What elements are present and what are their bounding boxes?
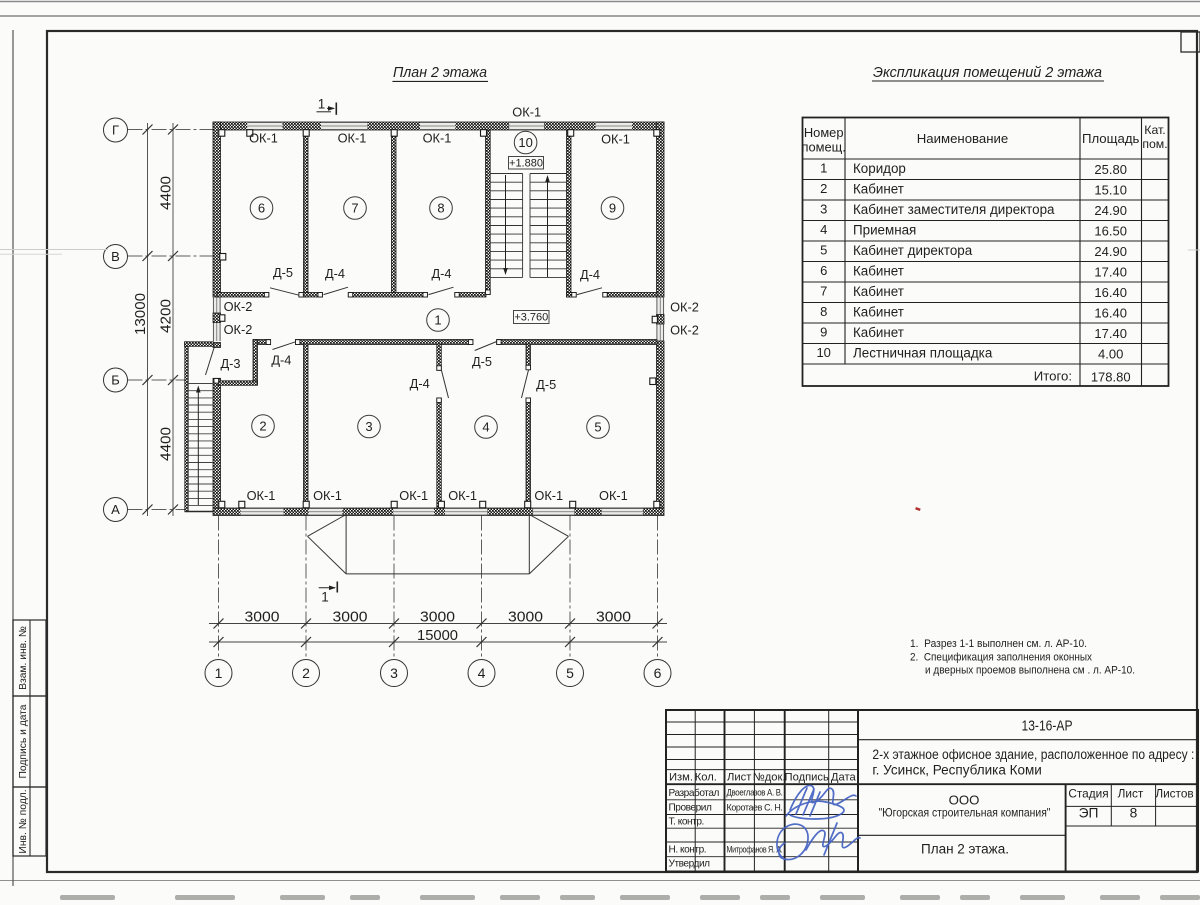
svg-text:ОК-1: ОК-1: [599, 488, 628, 503]
svg-text:16.40: 16.40: [1094, 306, 1127, 321]
svg-text:ОК-2: ОК-2: [224, 299, 253, 314]
svg-text:и дверных проемов выполнена см: и дверных проемов выполнена см . л. АР-1…: [925, 665, 1135, 677]
svg-text:ОК-1: ОК-1: [399, 488, 428, 503]
svg-text:+3.760: +3.760: [514, 312, 548, 324]
svg-text:Кабинет: Кабинет: [853, 182, 904, 197]
svg-text:4400: 4400: [158, 427, 175, 461]
svg-text:В: В: [111, 249, 120, 264]
svg-text:3000: 3000: [333, 609, 368, 626]
svg-text:7: 7: [351, 201, 358, 216]
svg-text:Коридор: Коридор: [853, 161, 906, 176]
svg-text:Утвердил: Утвердил: [669, 859, 711, 870]
svg-text:Номер: Номер: [804, 125, 844, 140]
svg-text:4200: 4200: [158, 299, 175, 333]
svg-text:6: 6: [654, 665, 662, 681]
svg-text:8: 8: [820, 304, 827, 319]
svg-text:1: 1: [321, 590, 329, 605]
svg-text:ОК-1: ОК-1: [601, 132, 630, 147]
svg-text:Стадия: Стадия: [1068, 786, 1108, 800]
svg-text:Б: Б: [111, 373, 120, 388]
svg-text:ОК-1: ОК-1: [423, 131, 452, 146]
svg-text:Подпись: Подпись: [785, 772, 829, 784]
svg-text:Д-5: Д-5: [472, 354, 492, 369]
svg-text:Листов: Листов: [1155, 786, 1193, 800]
svg-text:8: 8: [437, 201, 444, 216]
svg-text:"Югорская строительная компани: "Югорская строительная компания": [879, 806, 1051, 820]
svg-text:6: 6: [258, 201, 265, 216]
svg-text:Д-4: Д-4: [431, 266, 451, 281]
svg-text:13000: 13000: [132, 293, 149, 335]
svg-text:ОК-1: ОК-1: [512, 105, 541, 120]
svg-text:4: 4: [478, 665, 486, 681]
svg-text:Д-3: Д-3: [220, 356, 240, 371]
svg-text:15000: 15000: [417, 627, 458, 644]
svg-text:ОК-2: ОК-2: [670, 323, 699, 338]
svg-text:3000: 3000: [420, 609, 455, 626]
svg-text:10: 10: [518, 135, 532, 150]
svg-text:№док.: №док.: [753, 772, 786, 784]
svg-text:Кабинет: Кабинет: [853, 264, 904, 279]
svg-text:Д-5: Д-5: [536, 377, 556, 392]
svg-text:пом.: пом.: [1142, 137, 1167, 151]
svg-text:4400: 4400: [158, 176, 175, 210]
svg-text:Площадь: Площадь: [1082, 131, 1140, 146]
svg-text:ОК-1: ОК-1: [249, 131, 278, 146]
svg-text:ЭП: ЭП: [1079, 805, 1099, 820]
svg-text:9: 9: [820, 325, 827, 340]
svg-text:А: А: [111, 502, 120, 517]
svg-text:1: 1: [318, 97, 326, 112]
svg-text:Д-4: Д-4: [325, 266, 345, 281]
svg-text:Кат.: Кат.: [1144, 123, 1165, 137]
svg-text:+1.880: +1.880: [509, 157, 543, 169]
svg-text:Д-4: Д-4: [410, 376, 430, 391]
svg-text:3000: 3000: [245, 609, 280, 626]
svg-text:ОК-1: ОК-1: [313, 488, 342, 503]
svg-text:Г: Г: [112, 123, 119, 138]
svg-text:Приемная: Приемная: [853, 223, 916, 238]
svg-text:13-16-АР: 13-16-АР: [1022, 718, 1073, 735]
svg-text:2. Спецификация заполнения ок: 2. Спецификация заполнения оконных: [910, 652, 1092, 664]
svg-text:Кол.: Кол.: [695, 772, 717, 784]
svg-text:Кабинет: Кабинет: [853, 305, 904, 320]
svg-text:3: 3: [820, 202, 827, 217]
svg-text:Разработал: Разработал: [669, 787, 720, 799]
svg-text:Кабинет заместителя директора: Кабинет заместителя директора: [853, 202, 1055, 217]
svg-text:6: 6: [820, 263, 827, 278]
svg-text:Подпись и дата: Подпись и дата: [18, 704, 29, 778]
svg-text:24.90: 24.90: [1094, 203, 1127, 218]
svg-text:Коротаев С. Н.: Коротаев С. Н.: [727, 802, 783, 813]
svg-text:Д-4: Д-4: [271, 353, 291, 368]
svg-text:9: 9: [609, 201, 616, 216]
svg-text:8: 8: [1130, 805, 1138, 820]
svg-text:15.10: 15.10: [1094, 183, 1127, 198]
svg-text:Инв. № подл.: Инв. № подл.: [18, 789, 29, 853]
svg-text:ОК-2: ОК-2: [224, 322, 253, 337]
svg-text:3: 3: [390, 665, 398, 681]
svg-text:178.80: 178.80: [1091, 370, 1131, 385]
svg-text:Итого:: Итого:: [1034, 369, 1072, 384]
svg-text:2-х этажное офисное здание, ра: 2-х этажное офисное здание, расположенно…: [872, 747, 1194, 762]
svg-text:План 2 этажа.: План 2 этажа.: [921, 842, 1009, 857]
svg-text:10: 10: [816, 345, 830, 360]
svg-text:Митрофанов Я. А.: Митрофанов Я. А.: [727, 845, 783, 856]
svg-text:помещ.: помещ.: [802, 140, 846, 155]
svg-text:1. Разрез 1-1 выполнен см. л.: 1. Разрез 1-1 выполнен см. л. АР-10.: [910, 638, 1087, 650]
svg-text:16.40: 16.40: [1094, 285, 1127, 300]
svg-text:2: 2: [820, 181, 827, 196]
svg-text:ОК-1: ОК-1: [247, 488, 276, 503]
svg-text:5: 5: [594, 420, 601, 435]
svg-text:Кабинет: Кабинет: [853, 325, 904, 340]
svg-text:16.50: 16.50: [1094, 224, 1127, 239]
svg-text:Проверил: Проверил: [669, 803, 712, 814]
svg-text:1: 1: [434, 313, 441, 328]
svg-text:Н. контр.: Н. контр.: [669, 845, 707, 856]
svg-text:Наименование: Наименование: [917, 131, 1008, 146]
svg-text:2: 2: [302, 665, 310, 681]
svg-text:3: 3: [365, 419, 372, 434]
svg-text:ОК-1: ОК-1: [448, 488, 477, 503]
svg-text:Двоеглазов А. В.: Двоеглазов А. В.: [727, 788, 783, 799]
svg-text:3000: 3000: [596, 609, 631, 626]
svg-text:24.90: 24.90: [1094, 244, 1127, 259]
svg-text:ОК-1: ОК-1: [534, 488, 563, 503]
svg-text:Д-5: Д-5: [273, 265, 293, 280]
svg-text:Кабинет: Кабинет: [853, 284, 904, 299]
svg-text:2: 2: [259, 419, 266, 434]
svg-text:ОК-2: ОК-2: [670, 300, 699, 315]
svg-text:Лестничная площадка: Лестничная площадка: [853, 346, 993, 361]
svg-text:План 2 этажа: План 2 этажа: [393, 64, 487, 81]
svg-text:1: 1: [820, 161, 827, 176]
svg-text:Д-4: Д-4: [580, 267, 600, 282]
svg-text:17.40: 17.40: [1094, 265, 1127, 280]
svg-text:17.40: 17.40: [1094, 326, 1127, 341]
svg-text:Кабинет директора: Кабинет директора: [853, 243, 973, 258]
svg-text:ОК-1: ОК-1: [338, 131, 367, 146]
svg-text:г. Усинск, Республика Коми: г. Усинск, Республика Коми: [872, 763, 1041, 778]
svg-text:1: 1: [215, 665, 223, 681]
svg-text:25.80: 25.80: [1094, 162, 1127, 177]
svg-text:Взам. инв. №: Взам. инв. №: [18, 626, 29, 690]
svg-text:5: 5: [566, 665, 574, 681]
svg-text:7: 7: [820, 284, 827, 299]
svg-text:4: 4: [482, 420, 489, 435]
svg-text:4.00: 4.00: [1098, 347, 1123, 362]
svg-text:Лист: Лист: [1118, 786, 1144, 800]
svg-text:4: 4: [820, 222, 827, 237]
svg-text:Экспликация помещений 2 этажа: Экспликация помещений 2 этажа: [873, 64, 1102, 81]
svg-text:Дата: Дата: [831, 772, 857, 784]
svg-text:Лист: Лист: [727, 772, 751, 784]
svg-text:5: 5: [820, 243, 827, 258]
svg-text:Изм.: Изм.: [669, 772, 693, 784]
svg-text:3000: 3000: [508, 609, 543, 626]
svg-text:Т. контр.: Т. контр.: [669, 817, 704, 828]
